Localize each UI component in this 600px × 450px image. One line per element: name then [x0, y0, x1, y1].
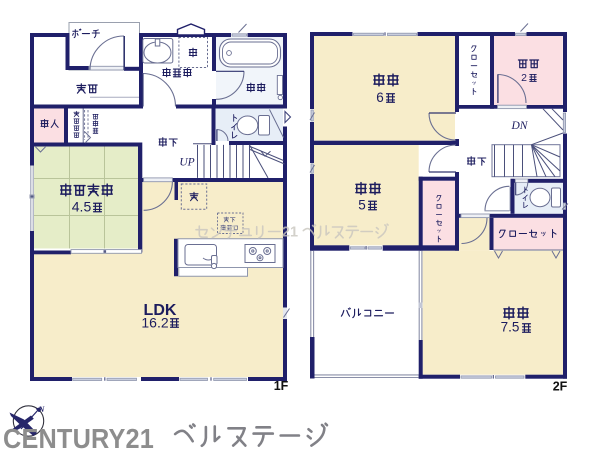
svg-text:6: 6	[376, 90, 384, 105]
svg-text:7.5: 7.5	[501, 320, 520, 335]
svg-text:1F: 1F	[274, 379, 289, 393]
svg-text:CENTURY21: CENTURY21	[3, 423, 154, 450]
svg-text:DN: DN	[511, 120, 529, 132]
svg-text:5: 5	[358, 198, 366, 213]
svg-text:2: 2	[521, 72, 527, 84]
svg-text:21: 21	[282, 225, 298, 241]
svg-text:UP: UP	[179, 157, 194, 169]
svg-text:2F: 2F	[553, 380, 568, 394]
svg-text:4.5: 4.5	[72, 199, 92, 215]
svg-text:16.2: 16.2	[141, 315, 168, 331]
